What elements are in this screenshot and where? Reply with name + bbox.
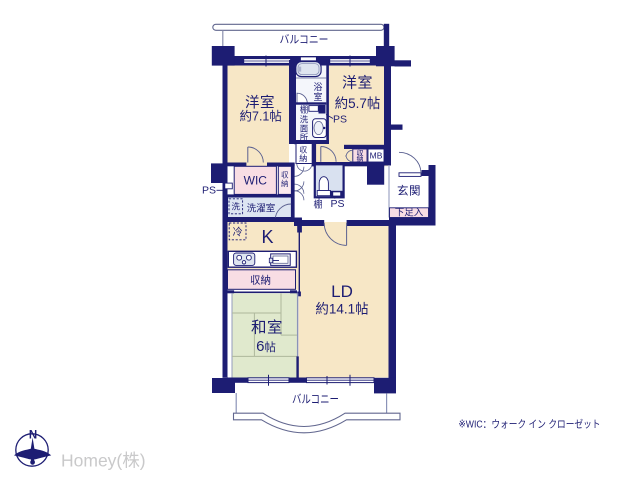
svg-text:洗濯室: 洗濯室 bbox=[247, 203, 276, 215]
svg-text:洋室: 洋室 bbox=[342, 75, 373, 92]
svg-text:棚: 棚 bbox=[300, 104, 309, 114]
svg-text:浴: 浴 bbox=[313, 82, 322, 92]
svg-text:室: 室 bbox=[313, 91, 322, 102]
svg-text:Homey(株): Homey(株) bbox=[61, 451, 146, 471]
svg-text:約7.1帖: 約7.1帖 bbox=[240, 109, 282, 124]
svg-text:※WIC：ウォーク イン クローゼット: ※WIC：ウォーク イン クローゼット bbox=[459, 419, 601, 431]
svg-text:バルコニー: バルコニー bbox=[292, 393, 339, 406]
svg-text:K: K bbox=[261, 227, 273, 247]
svg-text:PS: PS bbox=[202, 185, 216, 197]
svg-text:N: N bbox=[29, 430, 37, 442]
svg-text:納: 納 bbox=[281, 178, 289, 188]
svg-text:玄関: 玄関 bbox=[397, 184, 421, 198]
svg-text:PS: PS bbox=[333, 114, 347, 126]
svg-text:和室: 和室 bbox=[251, 319, 283, 337]
svg-text:MB: MB bbox=[370, 151, 383, 161]
svg-text:棚: 棚 bbox=[313, 199, 322, 210]
svg-text:バルコニー: バルコニー bbox=[280, 33, 329, 46]
svg-text:納: 納 bbox=[299, 153, 307, 163]
svg-text:約5.7帖: 約5.7帖 bbox=[335, 96, 381, 111]
svg-text:収納: 収納 bbox=[250, 274, 271, 287]
svg-text:PS: PS bbox=[331, 198, 345, 210]
svg-text:WIC: WIC bbox=[244, 174, 268, 188]
svg-text:洗: 洗 bbox=[232, 202, 241, 212]
svg-text:収: 収 bbox=[299, 145, 307, 155]
svg-text:冷: 冷 bbox=[233, 226, 243, 239]
svg-text:下足入: 下足入 bbox=[395, 208, 424, 219]
svg-text:LD: LD bbox=[331, 282, 353, 301]
svg-text:約14.1帖: 約14.1帖 bbox=[315, 302, 368, 317]
